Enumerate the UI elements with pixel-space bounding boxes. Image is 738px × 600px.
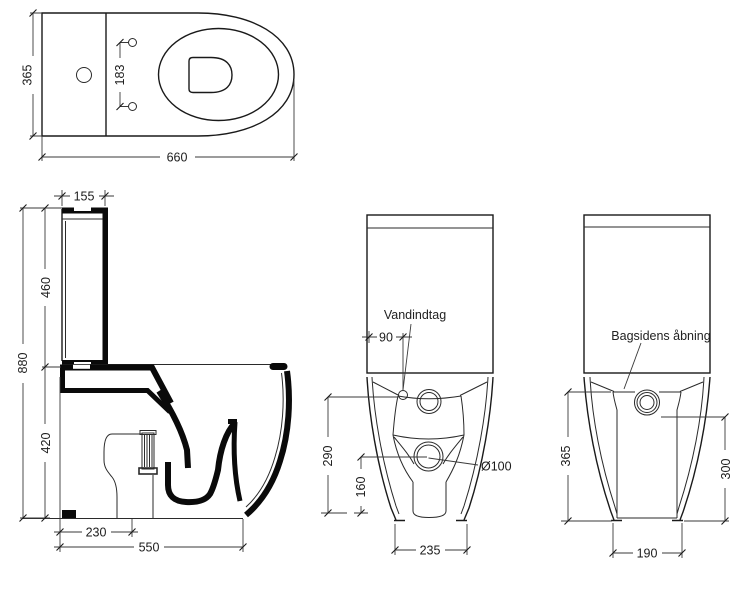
front-view: Vandindtag 90 290 160 Ø100 235 [321,215,512,558]
back-bowl-left-inner [590,377,617,514]
front-shoulder-lines [373,382,487,399]
back-view-dimensions: Bagsidens åbning 365 300 190 [559,329,733,561]
dim-label-front-diameter: Ø100 [481,460,512,474]
pedestal-outline [104,434,142,518]
tank-back-wall [103,208,109,368]
dim-label-back-365: 365 [559,446,573,467]
dim-label-side-155: 155 [74,190,95,204]
bagsidens-aabning-label: Bagsidens åbning [611,329,710,343]
bowl-plan-outline [42,13,294,136]
vandindtag-leader [403,324,411,390]
flush-button [77,68,92,83]
dim-label-front-160: 160 [354,477,368,498]
dim-label-top-365: 365 [21,65,35,86]
front-view-outline [367,215,493,521]
drawing-canvas: 365 183 660 [0,0,738,600]
inner-shell-line [246,373,283,507]
water-inlet-hole [399,391,408,400]
seat-outline [159,29,279,121]
side-view-dimensions: 155 460 880 420 230 550 [16,189,247,555]
inlet-pipe [139,431,157,475]
outer-shell [246,371,289,515]
trap-channel [413,482,446,518]
dim-label-front-235: 235 [420,544,441,558]
drain-opening-outer [635,390,660,415]
side-view-tank [62,208,108,368]
dim-label-side-230: 230 [86,526,107,540]
front-view-dimensions: Vandindtag 90 290 160 Ø100 235 [321,308,512,558]
hinge-bolt-bottom [129,103,137,111]
bagsidens-leader [624,343,641,389]
vandindtag-label: Vandindtag [384,308,446,322]
dim-label-side-460: 460 [39,277,53,298]
inner-front-wall [234,422,240,501]
drain-opening-inner [640,396,654,410]
dim-label-top-660: 660 [167,151,188,165]
dim-label-front-290: 290 [321,446,335,467]
seat-opening [189,58,232,93]
top-view-outline [42,13,294,136]
dim-label-back-190: 190 [637,547,658,561]
dim-label-side-550: 550 [139,541,160,555]
outlet-hole-outer [414,442,443,471]
hinge-bolt-top [129,39,137,47]
flush-valve-hole-inner [420,393,438,411]
funnel-arc [393,435,464,439]
top-view: 365 183 660 [20,10,298,165]
dim-label-front-90: 90 [379,331,393,345]
diameter-leader [429,458,479,465]
outlet-marker [62,510,76,518]
dim-label-side-880: 880 [16,353,30,374]
basin-back-wall [159,391,188,468]
flush-valve-hole-outer [417,390,441,414]
back-tank [584,215,710,373]
back-view-outline [584,215,710,521]
back-opening-panel [613,392,681,518]
trap-curve [168,423,235,502]
dim-label-back-300: 300 [719,459,733,480]
front-tank [367,215,493,373]
side-view: 155 460 880 420 230 550 [16,189,289,555]
outlet-hole-inner [417,445,440,468]
dim-label-side-420: 420 [39,433,53,454]
dim-label-top-183: 183 [113,65,127,86]
back-view: Bagsidens åbning 365 300 190 [559,215,733,561]
back-bowl-right-inner [677,377,704,514]
top-view-dimensions: 365 183 660 [20,10,298,165]
technical-drawing: 365 183 660 [0,0,738,600]
side-view-bowl-section [22,365,289,519]
